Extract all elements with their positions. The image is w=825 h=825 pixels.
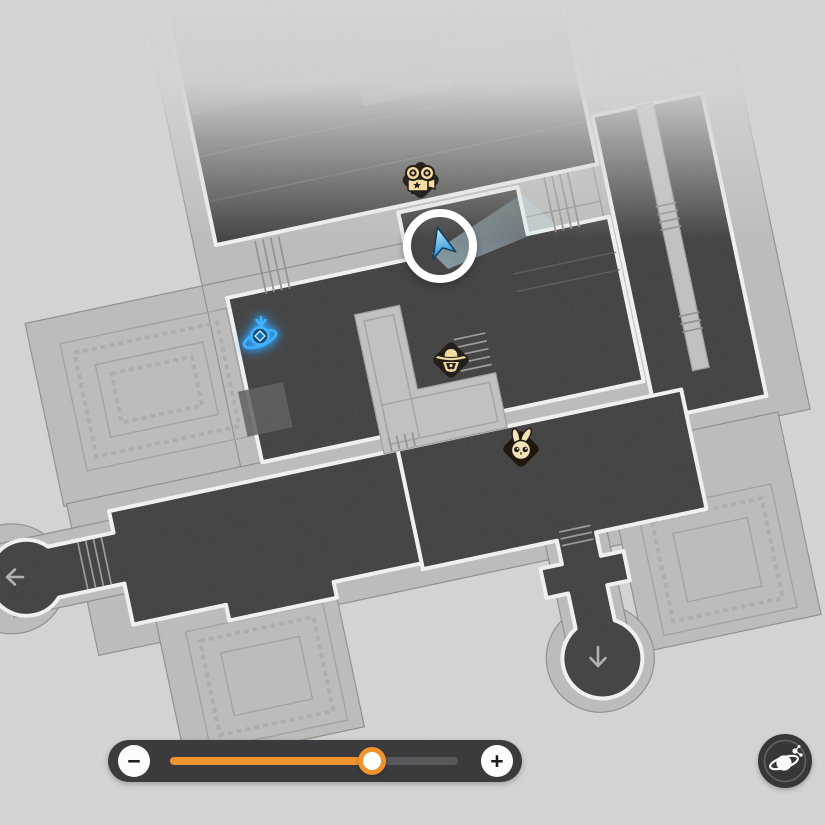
map-canvas[interactable] [0,0,825,825]
zoom-slider-handle[interactable] [358,747,386,775]
planet-view-button[interactable] [758,734,812,788]
zoom-slider-bar: − + [108,740,522,782]
zoom-out-button[interactable]: − [118,745,150,777]
hat-character-icon [431,341,471,381]
rabbit-character-icon [500,426,542,470]
player-arrow-icon [419,222,463,268]
arrow-left-icon [0,562,29,592]
zoom-in-button[interactable]: + [481,745,513,777]
zoom-slider-track[interactable] [170,757,458,765]
zoom-slider-fill [170,757,372,765]
grain-texture [0,0,825,825]
arrow-down-icon [583,641,613,673]
game-screen: − + [0,0,825,825]
space-anchor-icon [233,308,289,364]
ringed-planet-icon [758,734,812,788]
